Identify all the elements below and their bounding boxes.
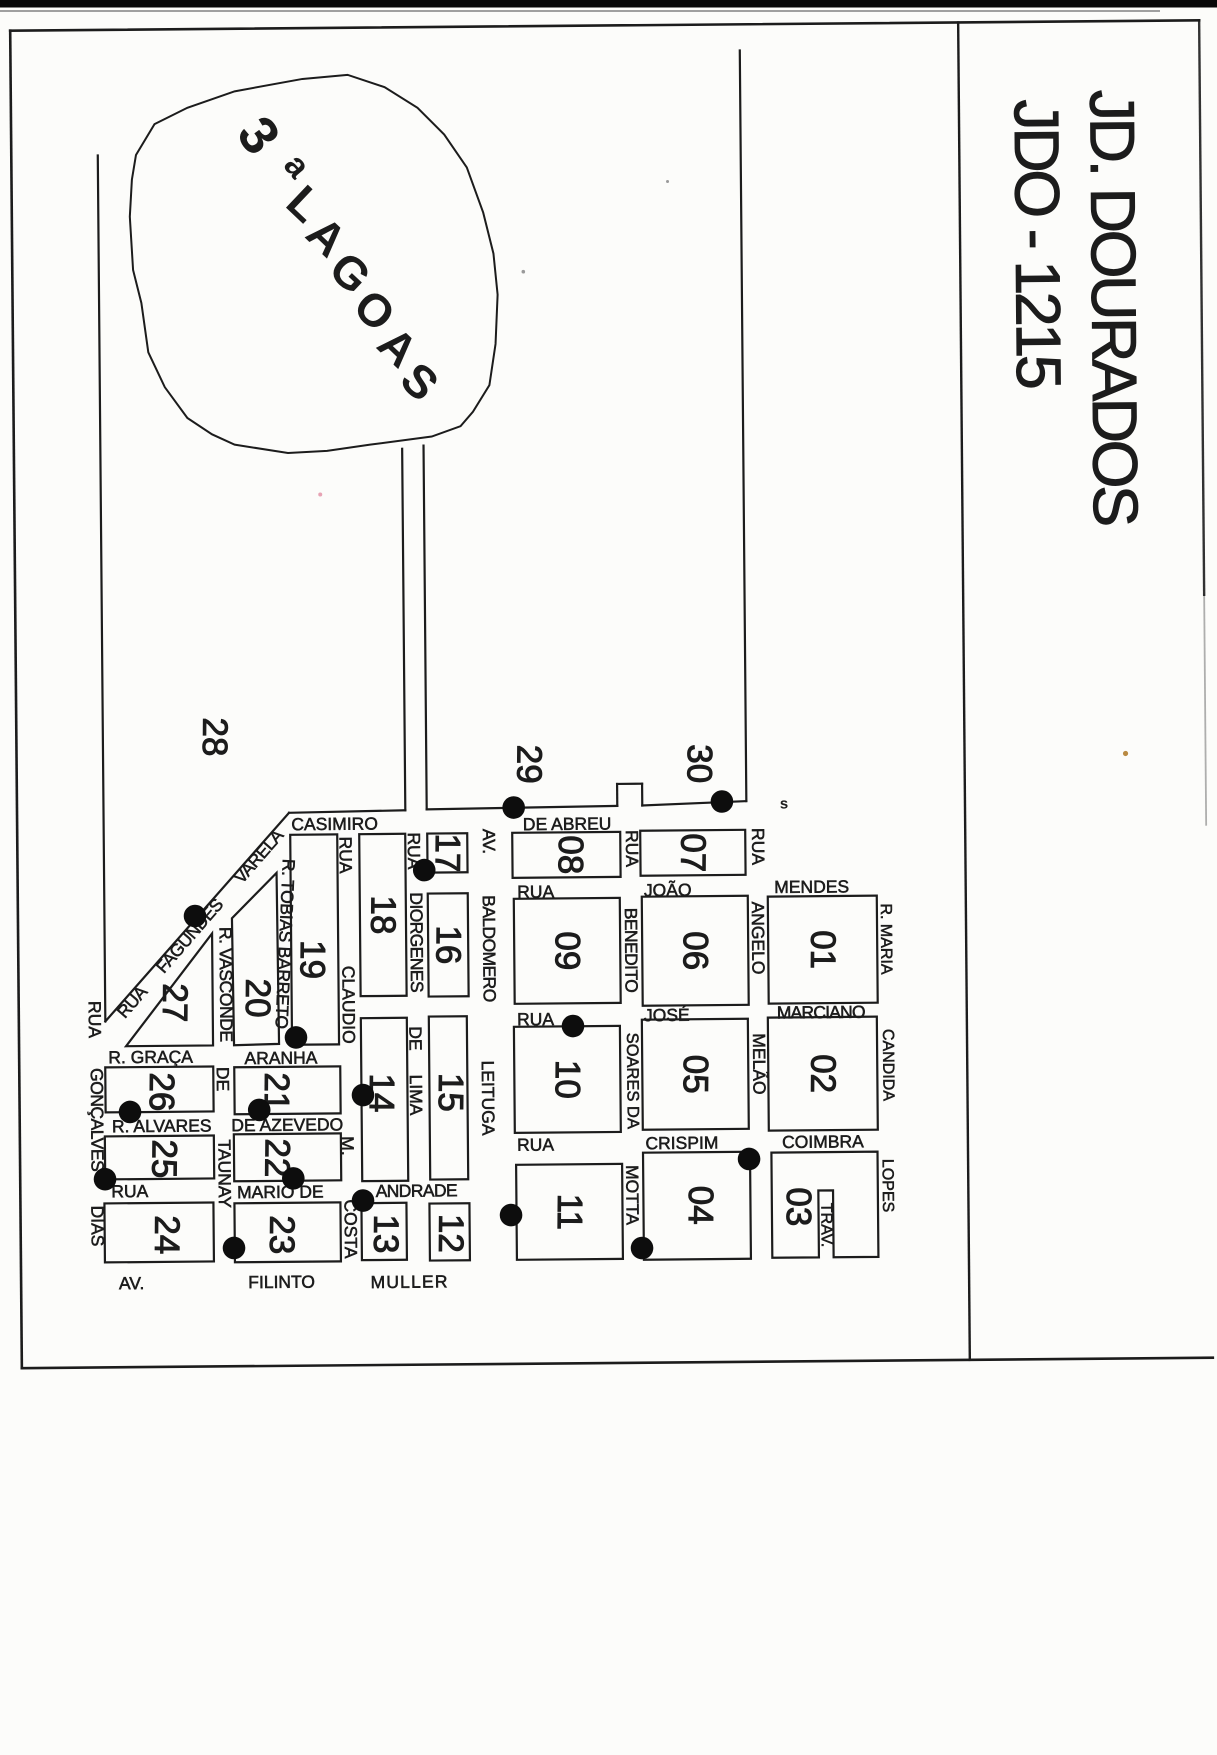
svg-text:MARCIANO: MARCIANO (777, 1002, 865, 1023)
svg-text:M.: M. (338, 1136, 358, 1156)
svg-text:01: 01 (803, 930, 842, 969)
svg-text:13: 13 (366, 1214, 405, 1253)
svg-text:RUA: RUA (111, 1181, 148, 1201)
svg-text:TAUNAY: TAUNAY (214, 1139, 235, 1208)
svg-text:DE AZEVEDO: DE AZEVEDO (231, 1114, 343, 1135)
svg-text:04: 04 (681, 1186, 720, 1225)
svg-text:08: 08 (551, 835, 590, 874)
svg-text:ANGELO: ANGELO (748, 901, 769, 974)
svg-text:JOSÉ: JOSÉ (644, 1005, 690, 1025)
svg-text:RUA: RUA (622, 830, 642, 867)
svg-text:SOARES DA: SOARES DA (623, 1033, 642, 1129)
svg-text:DE ABREU: DE ABREU (523, 813, 612, 834)
svg-text:LOPES: LOPES (879, 1159, 896, 1213)
svg-text:RUA: RUA (85, 1001, 105, 1038)
svg-text:CRISPIM: CRISPIM (645, 1133, 718, 1154)
svg-text:LIMA: LIMA (406, 1074, 426, 1115)
svg-text:ARANHA: ARANHA (244, 1048, 317, 1069)
svg-text:03: 03 (779, 1187, 818, 1226)
svg-text:09: 09 (548, 931, 587, 970)
svg-text:15: 15 (431, 1073, 470, 1112)
svg-text:07: 07 (673, 833, 712, 872)
svg-text:12: 12 (431, 1214, 470, 1253)
svg-text:19: 19 (293, 940, 332, 979)
svg-text:MULLER: MULLER (370, 1271, 448, 1292)
svg-text:LEITUGA: LEITUGA (478, 1061, 499, 1136)
svg-text:05: 05 (676, 1055, 715, 1094)
svg-text:CANDIDA: CANDIDA (879, 1029, 897, 1101)
svg-text:DIAS: DIAS (87, 1205, 107, 1246)
svg-text:BALDOMERO: BALDOMERO (479, 895, 500, 1002)
svg-text:02: 02 (803, 1054, 842, 1093)
svg-text:29: 29 (509, 745, 548, 784)
svg-text:R. GRAÇA: R. GRAÇA (108, 1047, 193, 1068)
svg-text:MELÃO: MELÃO (749, 1033, 770, 1094)
svg-text:AV.: AV. (479, 829, 499, 854)
svg-text:TRAV.: TRAV. (817, 1203, 834, 1248)
svg-text:23: 23 (262, 1215, 301, 1254)
svg-text:CASIMIRO: CASIMIRO (291, 814, 378, 835)
svg-text:JOÃO: JOÃO (644, 880, 692, 900)
svg-text:DE: DE (213, 1067, 233, 1091)
svg-text:MARIO DE: MARIO DE (237, 1182, 324, 1203)
svg-text:RUA: RUA (336, 837, 356, 874)
svg-text:R. MARIA: R. MARIA (877, 903, 895, 975)
svg-text:R. VASCONDE: R. VASCONDE (216, 927, 237, 1042)
svg-text:AV.: AV. (119, 1273, 144, 1293)
svg-text:MOTTA: MOTTA (622, 1165, 643, 1225)
svg-text:COIMBRA: COIMBRA (782, 1131, 864, 1152)
svg-text:27: 27 (155, 983, 194, 1022)
svg-text:BENEDITO: BENEDITO (621, 908, 642, 993)
svg-text:DE: DE (405, 1026, 425, 1050)
svg-text:10: 10 (548, 1060, 587, 1099)
svg-text:JDO - 1215: JDO - 1215 (1001, 99, 1074, 388)
svg-text:s: s (780, 795, 788, 812)
svg-text:16: 16 (429, 925, 468, 964)
svg-text:18: 18 (363, 895, 402, 934)
svg-text:DIORGENES: DIORGENES (406, 892, 427, 992)
svg-text:ANDRADE: ANDRADE (376, 1180, 458, 1201)
svg-text:30: 30 (680, 744, 719, 783)
svg-text:MENDES: MENDES (774, 876, 849, 897)
svg-text:RUA: RUA (517, 1009, 554, 1029)
svg-text:06: 06 (676, 931, 715, 970)
svg-text:26: 26 (142, 1072, 181, 1111)
svg-text:RUA: RUA (517, 881, 554, 901)
svg-text:GONÇALVES: GONÇALVES (87, 1068, 108, 1171)
svg-text:FILINTO: FILINTO (248, 1272, 315, 1293)
svg-text:11: 11 (550, 1194, 589, 1231)
svg-text:24: 24 (147, 1215, 186, 1254)
svg-text:RUA: RUA (517, 1134, 554, 1154)
svg-text:CLAUDIO: CLAUDIO (338, 966, 359, 1044)
svg-text:28: 28 (195, 717, 234, 756)
svg-text:RUA: RUA (748, 828, 768, 865)
svg-text:20: 20 (238, 978, 277, 1017)
svg-text:25: 25 (144, 1139, 183, 1178)
svg-text:JD. DOURADOS: JD. DOURADOS (1076, 89, 1150, 525)
